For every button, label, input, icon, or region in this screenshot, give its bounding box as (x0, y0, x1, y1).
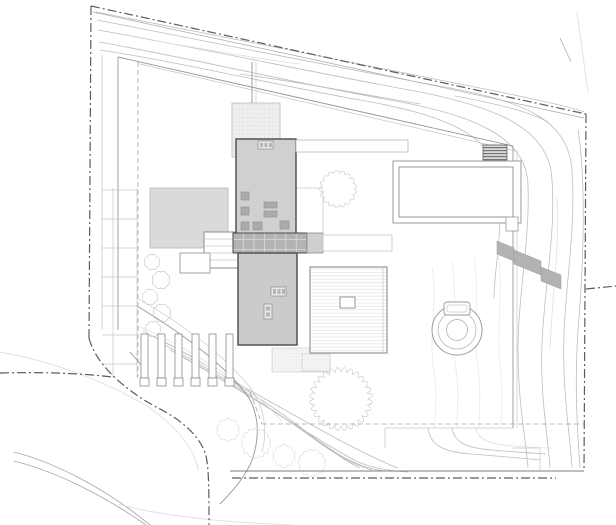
deck-bridge (233, 233, 307, 253)
site-plan-canvas (0, 0, 616, 525)
contour-line (240, 74, 420, 104)
southeast-pavilion (302, 267, 387, 371)
adjacent-lot-line (577, 12, 588, 92)
south-house-roof (238, 253, 297, 345)
shrub-icon (144, 254, 159, 269)
boundary-east (584, 114, 586, 470)
pier (208, 334, 217, 386)
spa-step (444, 302, 470, 315)
pier (140, 334, 149, 386)
boundary-west (89, 6, 91, 338)
north-house (236, 139, 296, 235)
contour-line (99, 42, 528, 468)
chimney (258, 141, 273, 149)
retaining-wall-segment (541, 267, 561, 289)
shrub-icon (152, 271, 169, 288)
canopy-walkway (296, 140, 408, 152)
survey-tick (560, 38, 571, 62)
chimney (271, 287, 286, 296)
upper-retaining-wall-inner (140, 64, 516, 151)
upper-retaining-wall (118, 57, 513, 146)
road-edge-curve (118, 504, 290, 525)
flue (264, 304, 272, 319)
contour-line (428, 428, 540, 460)
site-plan-drawing (0, 0, 616, 525)
retaining-wall-segment (497, 241, 514, 261)
lower-landing (180, 253, 210, 273)
shrub-icon (298, 449, 326, 477)
boundary-spur-east (586, 286, 616, 289)
terraced-steps (102, 188, 137, 378)
connecting-deck (233, 233, 392, 253)
pavilion-roof-inner (399, 167, 513, 217)
shrub-icon (273, 445, 295, 468)
tree-icon (310, 368, 373, 431)
faint-contour (432, 268, 436, 428)
pavilion-tab (506, 217, 518, 231)
tree-icon (319, 170, 356, 207)
northeast-pavilion (296, 140, 521, 231)
pier (191, 334, 200, 386)
boundary-spur-west (0, 373, 112, 377)
contour-line (452, 428, 546, 454)
east-walkway (323, 235, 392, 251)
retaining-wall-steps (497, 241, 561, 289)
spa-hot-tub (432, 302, 482, 355)
road-edge-curve (0, 352, 198, 470)
pier (174, 334, 183, 386)
pavilion-roof (310, 267, 387, 353)
boundary-west-curve (89, 338, 209, 525)
pier (157, 334, 166, 386)
vent-hatch (483, 145, 507, 160)
lower-terrace-hatch (302, 354, 330, 371)
pier (225, 334, 234, 386)
north-house-roof (236, 139, 296, 235)
boundary-north-fence (93, 12, 584, 118)
skylight (340, 297, 355, 308)
faint-contour (498, 252, 502, 428)
retaining-wall-segment (514, 250, 541, 275)
contour-line (576, 130, 583, 468)
contour-line (476, 428, 552, 448)
shrub-icon (217, 419, 239, 442)
deck-extension (307, 233, 323, 253)
road-edge-curve (14, 461, 146, 525)
